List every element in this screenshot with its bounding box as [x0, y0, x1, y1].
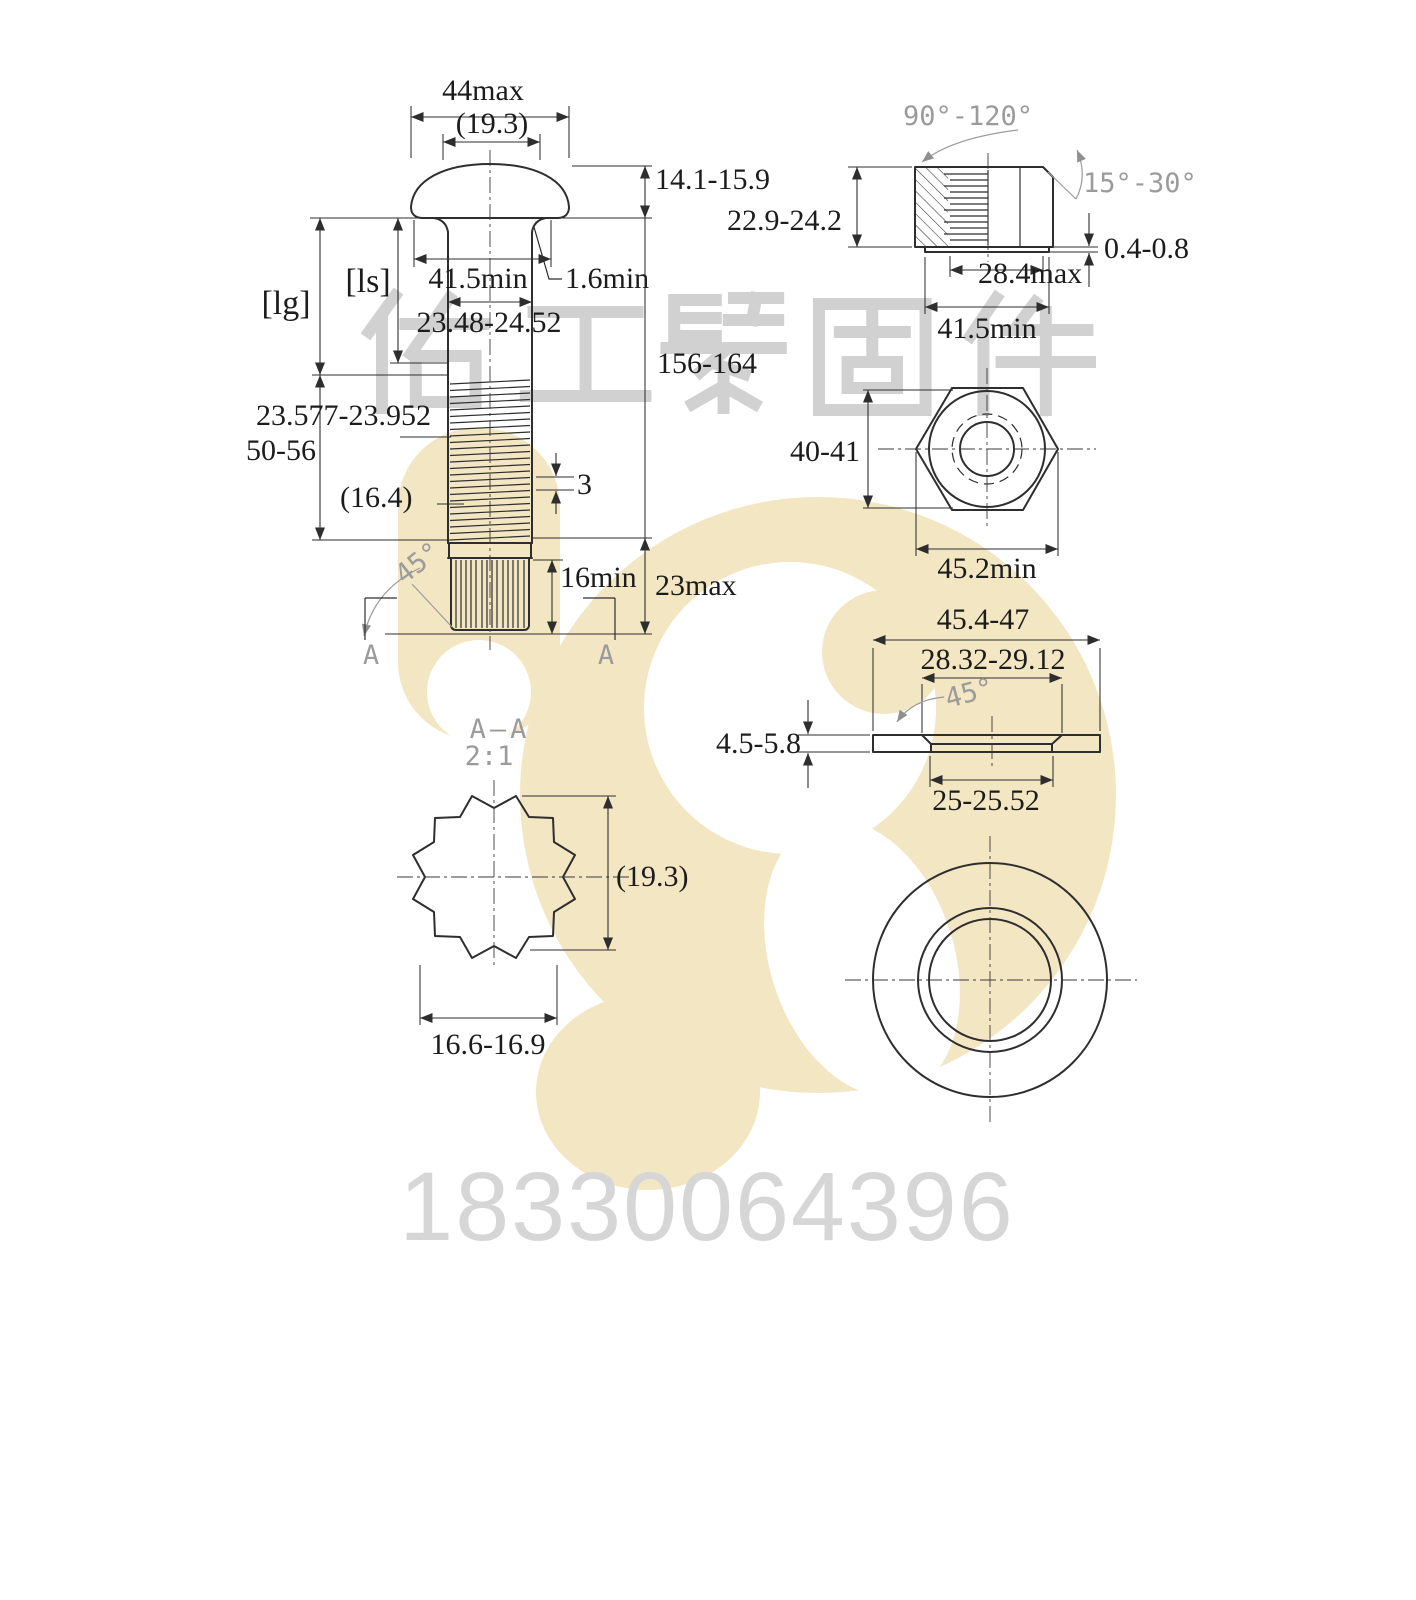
lbl-lg: [lg] [261, 285, 310, 322]
dim-nut-height: 22.9-24.2 [727, 204, 842, 237]
phone-watermark: 18330064396 [399, 1152, 1014, 1261]
dim-washer-thickness: 4.5-5.8 [716, 727, 801, 760]
section-marker-a-right: A [598, 640, 614, 671]
dim-across-corners: 45.2min [937, 552, 1036, 585]
technical-drawing: 佑工紧固件 18330064396 44 [0, 0, 1416, 1600]
dim-washer-od: 45.4-47 [937, 603, 1030, 636]
dim-fillet: 1.6min [565, 262, 649, 295]
dim-spline-ref: (19.3) [616, 860, 688, 893]
dim-bearing-dia: 41.5min [428, 262, 527, 295]
dim-washer-chamfer-dia: 28.32-29.12 [921, 643, 1066, 676]
section-scale: 2:1 [465, 741, 514, 772]
drawing-canvas: 佑工紧固件 18330064396 44 [0, 0, 1416, 1600]
dim-thread-dia: 23.577-23.952 [256, 399, 431, 432]
dim-overall-length: 156-164 [657, 347, 757, 380]
dim-washer-face-thickness: 0.4-0.8 [1104, 232, 1189, 265]
nut-internal-threads [944, 174, 988, 240]
section-marker-a-left: A [363, 640, 379, 671]
dim-spline-length: 16min [560, 561, 637, 594]
lbl-ls: [ls] [345, 263, 390, 300]
angle-chamfer-nut: 15°-30° [1083, 168, 1197, 199]
dim-pitch: 3 [577, 468, 592, 501]
dim-tip-length: 23max [655, 569, 737, 602]
dim-nut-bearing: 41.5min [937, 312, 1036, 345]
angle-countersink: 90°-120° [903, 101, 1033, 132]
dim-head-ref: (19.3) [456, 107, 528, 140]
dim-head-height: 14.1-15.9 [655, 163, 770, 196]
dim-thread-length: 50-56 [246, 434, 316, 467]
dim-shank-dia: 23.48-24.52 [417, 306, 562, 339]
dim-ref-164: (16.4) [340, 481, 412, 514]
dim-washer-id: 25-25.52 [932, 784, 1040, 817]
dim-washer-face-dia: 28.4max [978, 257, 1082, 290]
dim-spline-width: 16.6-16.9 [431, 1028, 546, 1061]
dim-44max: 44max [442, 74, 524, 107]
nut-section-hatch [915, 167, 948, 247]
dim-across-flats: 40-41 [790, 435, 860, 468]
